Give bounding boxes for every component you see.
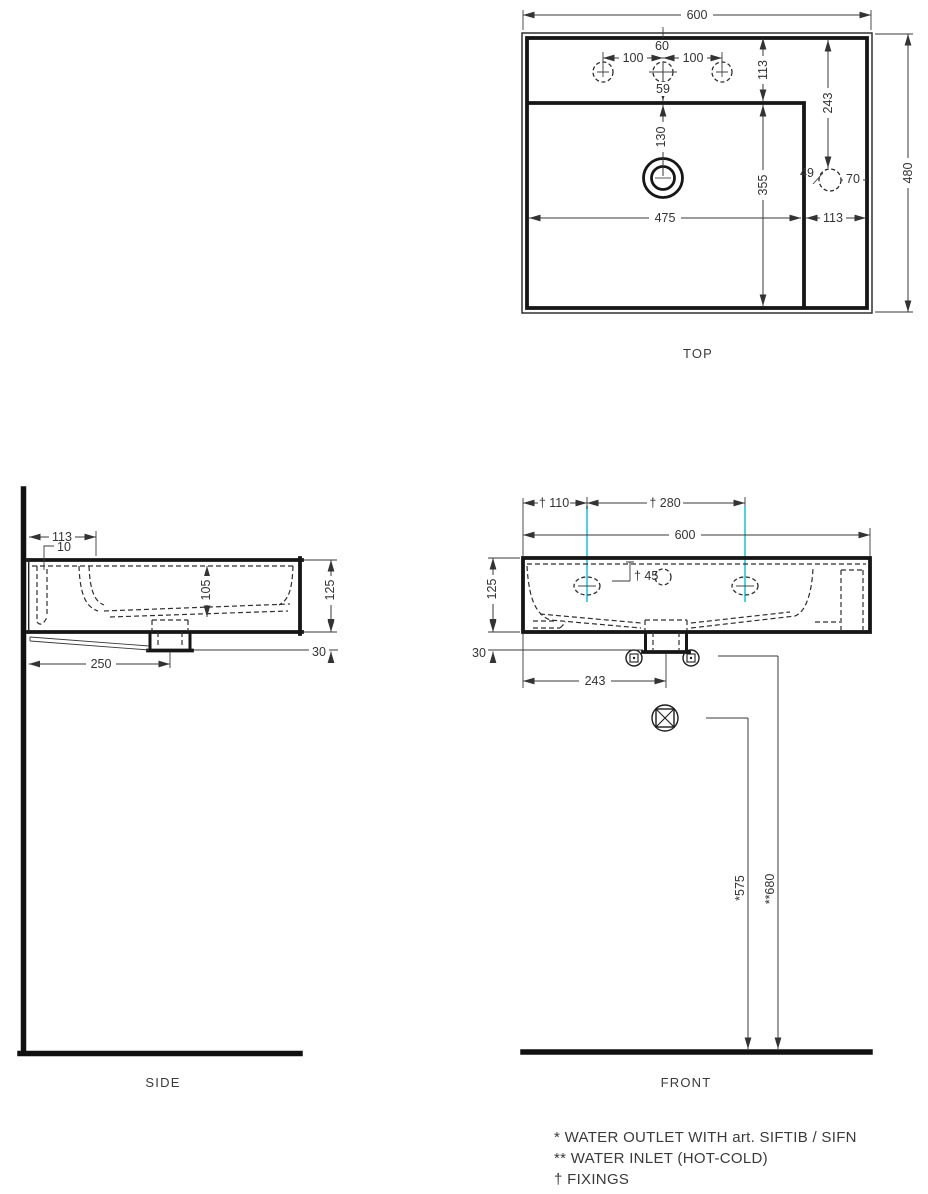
front-view: † 110 † 280 600 † 45 125 30	[472, 496, 870, 1090]
side-view-trap	[30, 632, 192, 651]
dim-front-fixing-left: † 110	[539, 496, 569, 510]
side-view: 113 10 105 125 30 250 SIDE	[20, 489, 338, 1090]
legend: * WATER OUTLET WITH art. SIFTIB / SIFN *…	[554, 1129, 857, 1188]
front-view-holes	[574, 569, 758, 595]
legend-water-inlet: ** WATER INLET (HOT-COLD)	[554, 1150, 768, 1167]
front-view-label: FRONT	[661, 1075, 712, 1090]
dim-side-bowl-depth: 105	[199, 580, 213, 601]
front-view-hidden-lines	[527, 564, 866, 632]
front-view-outline	[523, 558, 870, 632]
water-inlet-symbol-right	[683, 650, 699, 666]
dim-top-width: 600	[687, 8, 708, 22]
top-view-outline	[522, 33, 872, 313]
dim-front-width: 600	[675, 528, 696, 542]
washbasin-technical-drawing: 600 480 100 100 60 59 113	[0, 0, 928, 1189]
top-view-dimensions: 600 480 100 100 60 59 113	[523, 8, 915, 312]
legend-fixings: † FIXINGS	[554, 1171, 629, 1188]
dim-top-overflow-dia: 49	[800, 166, 814, 180]
dim-top-rim-right: 113	[823, 211, 843, 225]
dim-front-fixing-drop: † 45	[634, 569, 658, 583]
dim-top-hole-to-bowl: 59	[656, 82, 670, 96]
front-fixing-lines	[587, 506, 745, 602]
dim-top-drain-offset: 130	[654, 127, 668, 148]
dim-top-hole-pitch-left: 100	[623, 51, 644, 65]
dim-side-body-height: 125	[323, 580, 337, 601]
technical-drawing-sheet: 600 480 100 100 60 59 113	[0, 0, 928, 1189]
dim-front-fixing-pitch: † 280	[649, 496, 680, 510]
dim-top-bowl-width: 475	[655, 211, 676, 225]
dim-top-height: 480	[901, 163, 915, 184]
dim-front-inlet-height: **680	[763, 874, 777, 905]
dim-side-trap-center: 250	[91, 657, 112, 671]
water-inlet-symbol-left	[626, 650, 642, 666]
water-outlet-symbol	[652, 705, 678, 731]
dim-front-trap-center: 243	[585, 674, 606, 688]
top-view-label: TOP	[683, 346, 713, 361]
dim-top-overflow-offset: 243	[821, 93, 835, 114]
dim-front-body-height: 125	[485, 579, 499, 600]
side-view-label: SIDE	[145, 1075, 180, 1090]
top-view: 600 480 100 100 60 59 113	[522, 8, 915, 361]
legend-water-outlet: * WATER OUTLET WITH art. SIFTIB / SIFN	[554, 1129, 857, 1146]
front-view-trap	[643, 632, 689, 652]
dim-front-outlet-height: *575	[733, 875, 747, 901]
dim-side-trap-drop: 30	[312, 645, 326, 659]
dim-top-bowl-length: 355	[756, 175, 770, 196]
dim-front-trap-drop: 30	[472, 646, 486, 660]
dim-top-overflow-edge: 70	[846, 172, 860, 186]
dim-top-rim-depth: 113	[756, 60, 770, 80]
dim-top-hole-pitch-right: 100	[683, 51, 704, 65]
side-view-hidden-lines	[32, 566, 296, 648]
dim-side-channel-gap: 10	[57, 540, 71, 554]
side-view-outline	[28, 558, 302, 634]
dim-top-center-hole: 60	[655, 39, 669, 53]
